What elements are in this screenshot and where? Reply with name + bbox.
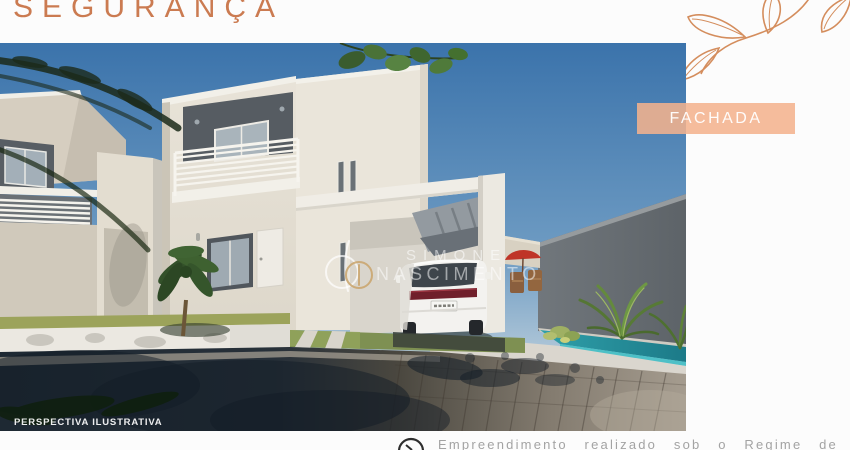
rear-window <box>409 263 477 287</box>
patio-area <box>505 236 542 293</box>
page-title: SEGURANÇA <box>13 0 284 25</box>
image-label: FACHADA <box>637 103 795 134</box>
footer-badge-icon <box>396 436 426 450</box>
facade-photo: SIMONE NASCIMENTO PERSPECTIVA ILUSTRATIV… <box>0 43 686 431</box>
footer-text: Empreendimento realizado sob o Regime de <box>438 435 838 450</box>
chair <box>510 272 524 293</box>
photo-caption: PERSPECTIVA ILUSTRATIVA <box>14 417 162 428</box>
slide: SEGURANÇA <box>0 0 850 450</box>
main-house-front <box>162 76 300 340</box>
facade-render <box>0 43 686 431</box>
leaf-branch-icon <box>682 0 850 98</box>
chair <box>528 270 542 291</box>
image-label-text: FACHADA <box>669 110 762 128</box>
